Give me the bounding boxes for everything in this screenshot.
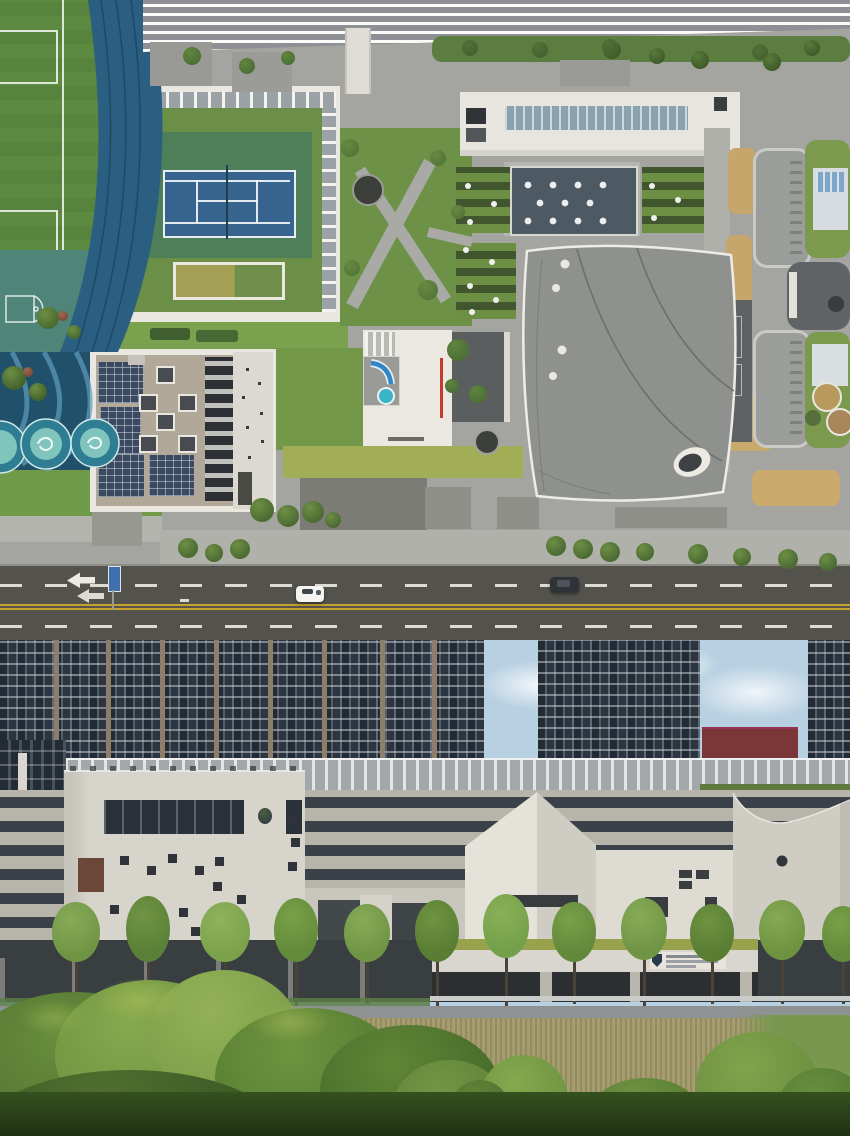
white-walkway (345, 28, 371, 94)
lawn-planter (475, 430, 499, 454)
road-sign-blue (108, 566, 121, 592)
bush (602, 39, 618, 55)
tree (469, 385, 487, 403)
white-sedan-car (296, 586, 324, 602)
street-tree (344, 904, 390, 962)
porthole-window (777, 856, 788, 867)
tree (447, 339, 469, 361)
canopy-highlight (250, 1002, 330, 1042)
street-tree (205, 544, 223, 562)
dark-car-roof (557, 580, 570, 587)
play-pool-circles (0, 419, 119, 473)
street-tree (552, 902, 596, 962)
sign-text-line (666, 965, 696, 968)
tree (344, 260, 360, 276)
bush (532, 42, 548, 58)
bush (462, 40, 478, 56)
street-tree (274, 898, 318, 962)
street-tree (302, 501, 324, 523)
pool-skylight-dots (525, 182, 607, 225)
tree (430, 150, 446, 166)
tree (29, 383, 47, 401)
running-track-band (60, 0, 163, 352)
street-tree (230, 539, 250, 559)
street-tree (600, 542, 620, 562)
car-windshield (302, 589, 313, 594)
tree (445, 379, 459, 393)
street-tree (52, 902, 100, 962)
street-tree (277, 505, 299, 527)
tree (37, 307, 59, 329)
tree (451, 205, 465, 219)
street-tree (819, 553, 837, 571)
street-tree (778, 549, 798, 569)
tree (183, 47, 201, 65)
plaza-pad-1 (150, 42, 212, 86)
street-tree (621, 898, 667, 960)
street-tree (483, 894, 529, 958)
autumn-tree (58, 311, 68, 321)
street-tree (178, 538, 198, 558)
street-tree (690, 904, 734, 962)
street-tree (415, 900, 459, 962)
road-arrow-1 (67, 573, 95, 589)
photo-collage (0, 0, 850, 1136)
aerial-vector-details (0, 0, 850, 640)
canopy-highlight (20, 1000, 90, 1036)
street-tree (733, 548, 751, 566)
road-mark (180, 599, 189, 602)
tree (67, 325, 81, 339)
plaza-pad-3 (560, 60, 630, 86)
street-tree (325, 512, 341, 528)
elevation-photo (0, 640, 850, 1136)
aerial-photo (0, 0, 850, 640)
tree (418, 280, 438, 300)
car-rear-window (316, 590, 321, 595)
tree (649, 48, 665, 64)
tree (691, 51, 709, 69)
street-tree (688, 544, 708, 564)
autumn-tree (23, 367, 33, 377)
street-tree (546, 536, 566, 556)
tree (281, 51, 295, 65)
bottom-foliage-band (0, 1092, 850, 1136)
street-tree (573, 539, 593, 559)
bush-band (432, 36, 850, 62)
tree (804, 40, 820, 56)
street-tree (759, 900, 805, 960)
guardrail (430, 996, 850, 1001)
street-tree (126, 896, 170, 962)
road-sign-pole (112, 590, 114, 610)
tree (341, 139, 359, 157)
street-tree (636, 543, 654, 561)
street-tree (250, 498, 274, 522)
road-arrow-2 (77, 589, 104, 603)
dark-car (550, 577, 579, 592)
street-tree (200, 902, 250, 962)
garden-pit (353, 175, 383, 205)
bush (752, 44, 768, 60)
tree (239, 58, 255, 74)
canopy-highlight (95, 978, 185, 1023)
